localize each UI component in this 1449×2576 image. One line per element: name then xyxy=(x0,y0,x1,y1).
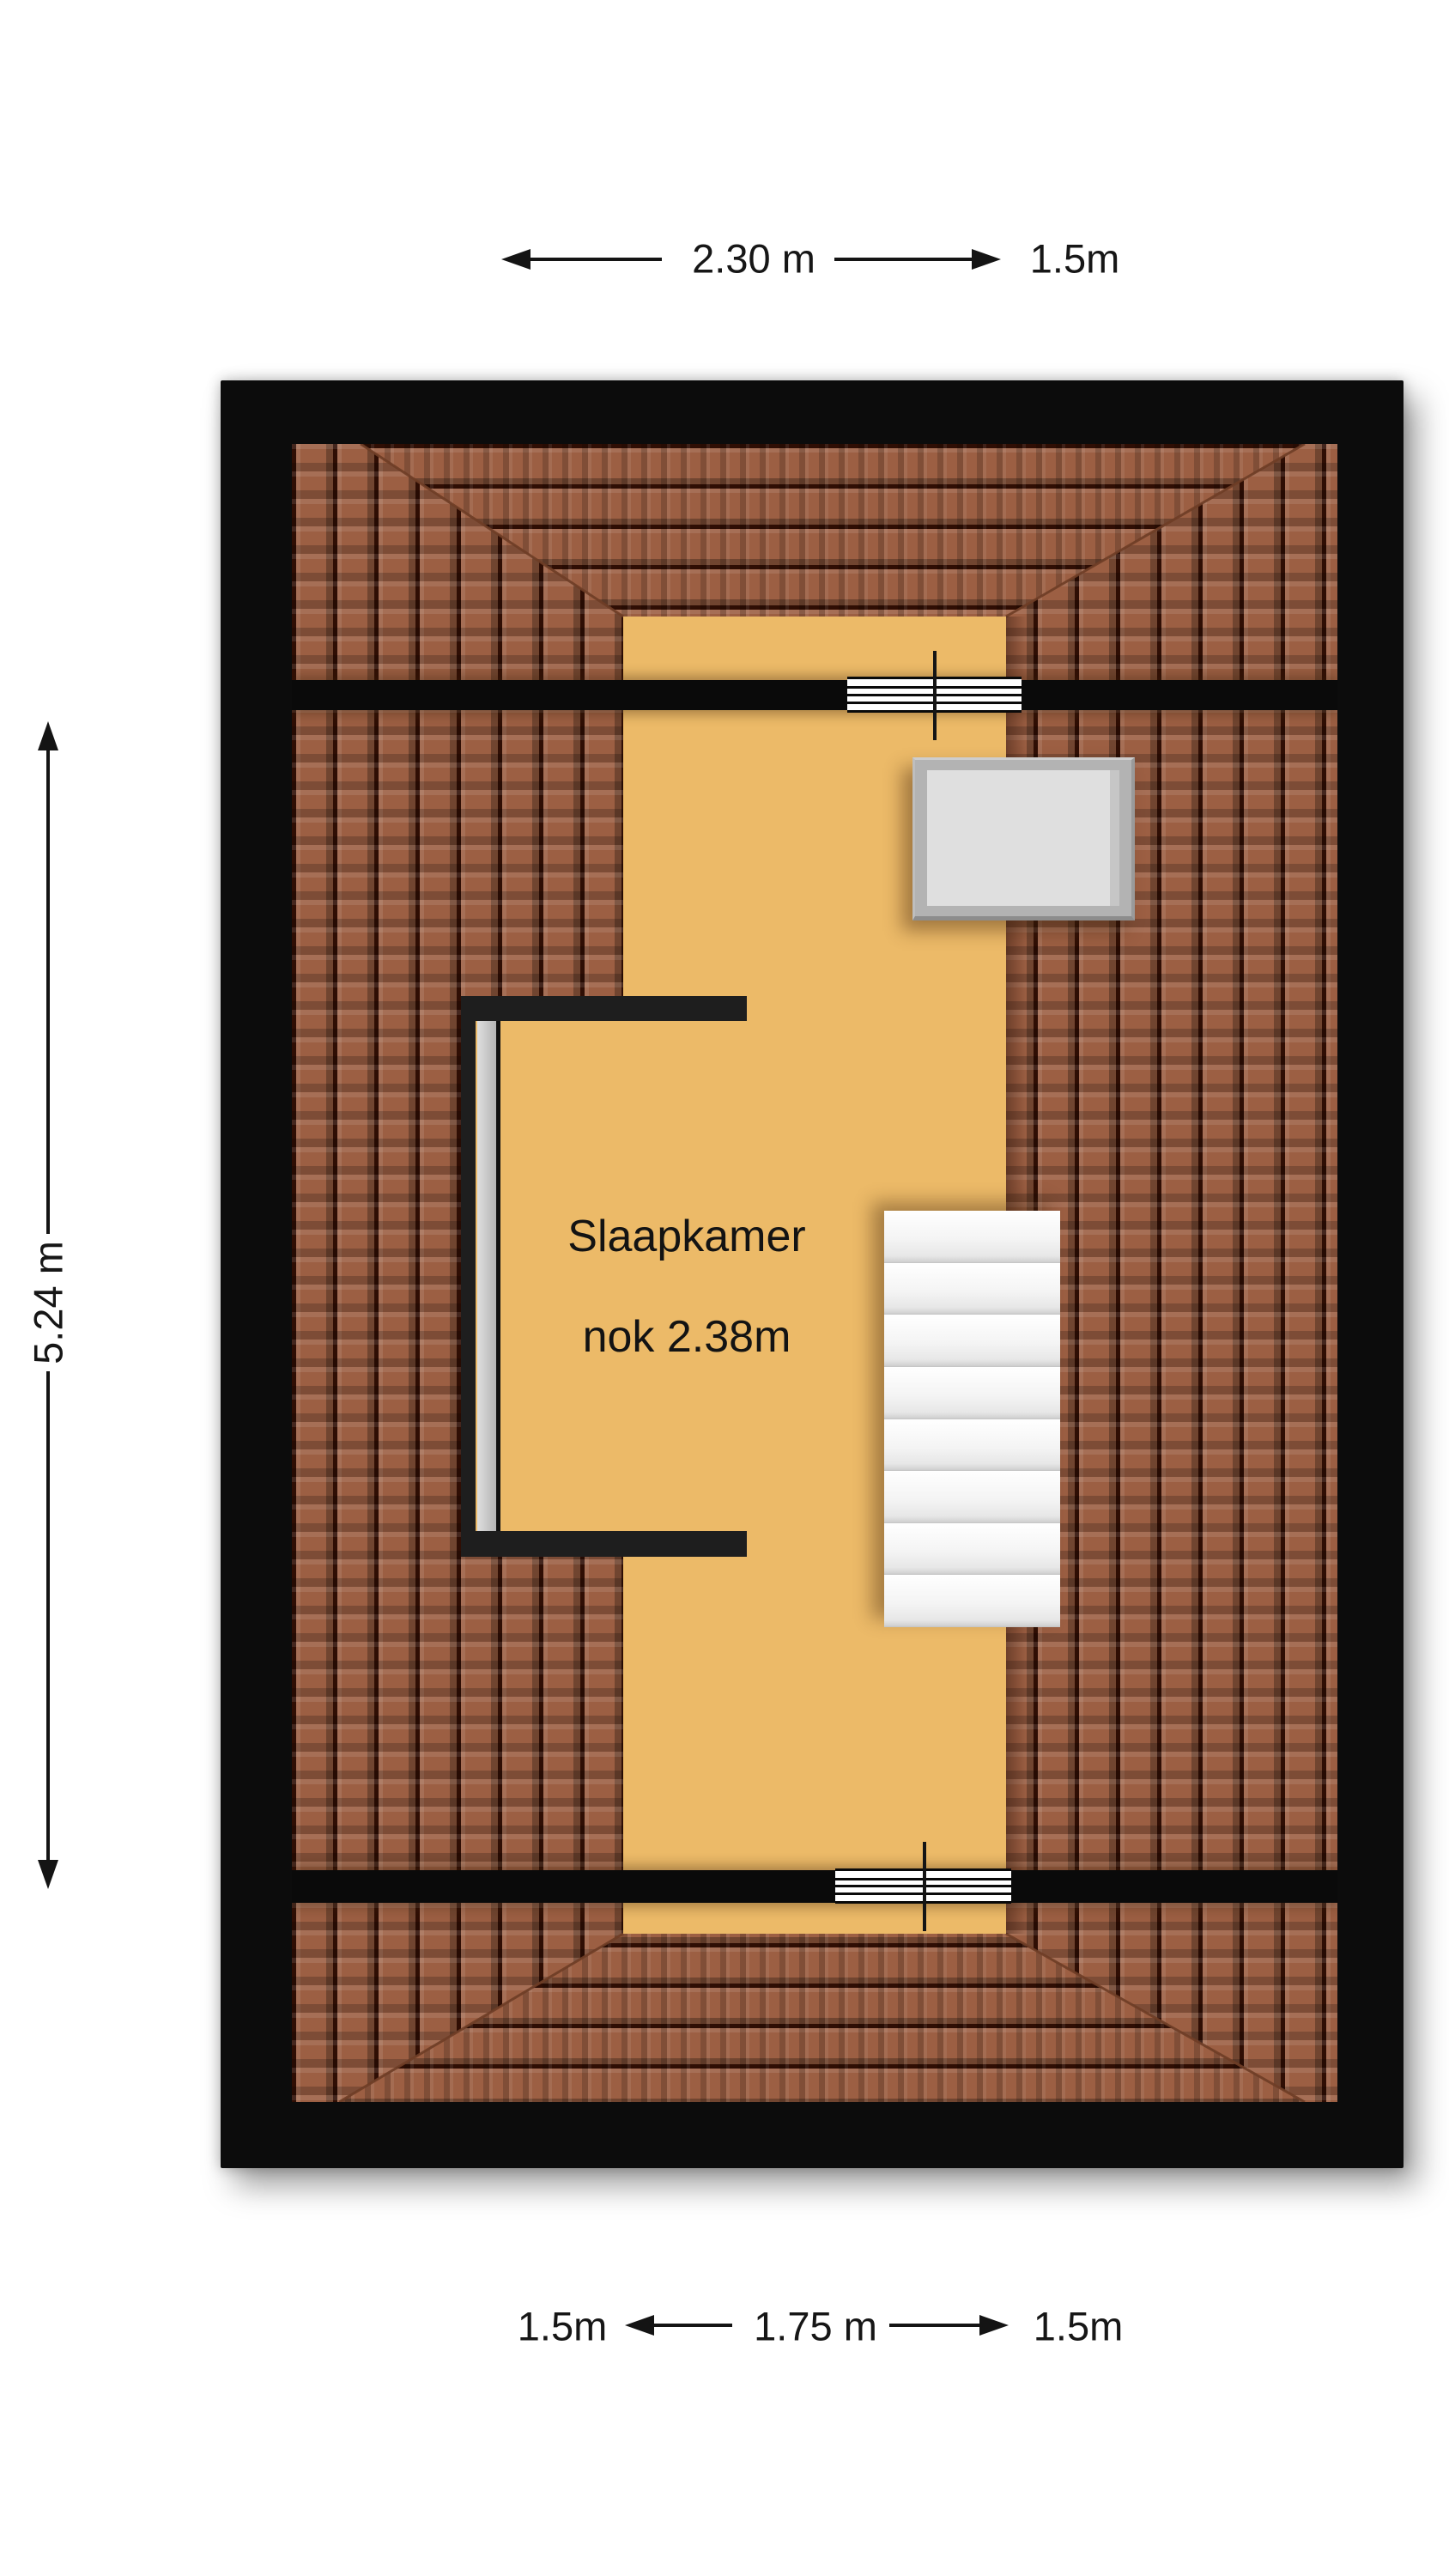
knee-wall-lining xyxy=(477,1021,496,1531)
structural-wall-top xyxy=(292,680,1337,710)
stair-step xyxy=(884,1211,1060,1263)
dimension-label-bottom-span: 1.75 m xyxy=(754,2303,877,2350)
partition-wall-top xyxy=(461,996,747,1021)
stair-step xyxy=(884,1471,1060,1523)
skylight xyxy=(912,757,1135,920)
dimension-line xyxy=(46,1371,50,1862)
dimension-line xyxy=(889,2324,985,2327)
dimension-line xyxy=(647,2324,732,2327)
stair-step xyxy=(884,1419,1060,1472)
dimension-label-top-right: 1.5m xyxy=(1030,235,1120,283)
dimension-label-left-span: 5.24 m xyxy=(25,1241,72,1364)
arrow-right-icon xyxy=(972,249,1001,270)
dimension-label-bottom-right: 1.5m xyxy=(1034,2303,1124,2350)
window-bottom-center-mark xyxy=(923,1842,926,1931)
partition-wall-left xyxy=(461,996,476,1557)
dimension-label-bottom-left: 1.5m xyxy=(518,2303,608,2350)
arrow-down-icon xyxy=(38,1860,58,1889)
staircase xyxy=(884,1211,1060,1627)
dimension-line xyxy=(524,258,662,261)
stair-step xyxy=(884,1315,1060,1367)
floorplan-page: 2.30 m 1.5m 5.24 m 1.5m 1.75 m 1.5m xyxy=(0,0,1449,2576)
plan-outer-wall: Slaapkamer nok 2.38m xyxy=(221,380,1404,2168)
stair-step xyxy=(884,1575,1060,1627)
stair-step xyxy=(884,1523,1060,1576)
skylight-pane xyxy=(927,770,1119,906)
dimension-label-top-span: 2.30 m xyxy=(692,235,815,283)
arrow-right-icon xyxy=(979,2315,1009,2336)
room-height-label: nok 2.38m xyxy=(583,1311,791,1363)
dimension-line xyxy=(46,747,50,1234)
dimension-line xyxy=(834,258,975,261)
window-top-center-mark xyxy=(933,651,937,740)
stair-step xyxy=(884,1263,1060,1315)
roof-surface: Slaapkamer nok 2.38m xyxy=(292,444,1337,2102)
structural-wall-bottom xyxy=(292,1870,1337,1903)
partition-wall-bottom xyxy=(461,1531,747,1557)
arrow-up-icon xyxy=(38,721,58,750)
room-name-label: Slaapkamer xyxy=(567,1211,805,1262)
stair-step xyxy=(884,1367,1060,1419)
knee-wall-edge xyxy=(496,1021,500,1531)
